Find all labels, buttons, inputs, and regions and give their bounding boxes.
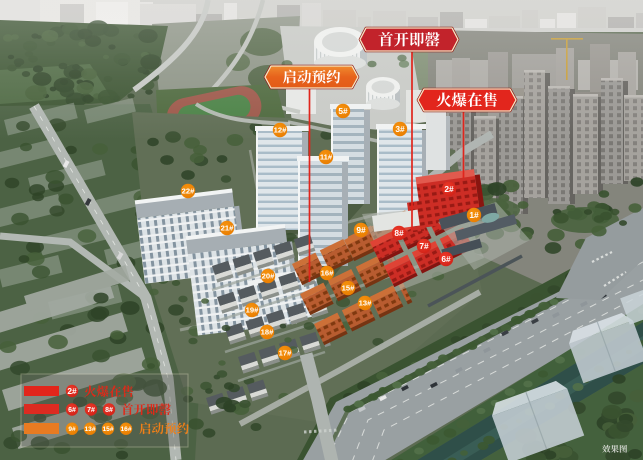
svg-text:21#: 21# (221, 224, 234, 233)
svg-text:9#: 9# (356, 225, 366, 235)
svg-text:13#: 13# (84, 426, 95, 433)
svg-text:8#: 8# (105, 407, 113, 414)
svg-text:19#: 19# (246, 306, 259, 315)
svg-text:11#: 11# (320, 153, 333, 162)
svg-text:2#: 2# (67, 386, 77, 396)
svg-text:8#: 8# (394, 228, 404, 238)
svg-text:12#: 12# (274, 126, 287, 135)
svg-text:3#: 3# (395, 124, 405, 134)
svg-text:13#: 13# (359, 299, 372, 308)
svg-text:1#: 1# (469, 210, 479, 220)
svg-text:7#: 7# (87, 407, 95, 414)
svg-text:6#: 6# (441, 254, 451, 264)
svg-text:15#: 15# (102, 426, 113, 433)
svg-text:22#: 22# (182, 187, 195, 196)
svg-text:2#: 2# (444, 184, 454, 194)
svg-text:7#: 7# (419, 241, 429, 251)
svg-text:20#: 20# (262, 272, 275, 281)
svg-text:15#: 15# (342, 284, 355, 293)
svg-text:5#: 5# (338, 106, 348, 116)
svg-text:16#: 16# (321, 269, 334, 278)
svg-text:16#: 16# (120, 426, 131, 433)
svg-text:18#: 18# (261, 328, 274, 337)
svg-text:9#: 9# (68, 426, 76, 433)
svg-text:6#: 6# (68, 407, 76, 414)
svg-text:17#: 17# (279, 349, 292, 358)
